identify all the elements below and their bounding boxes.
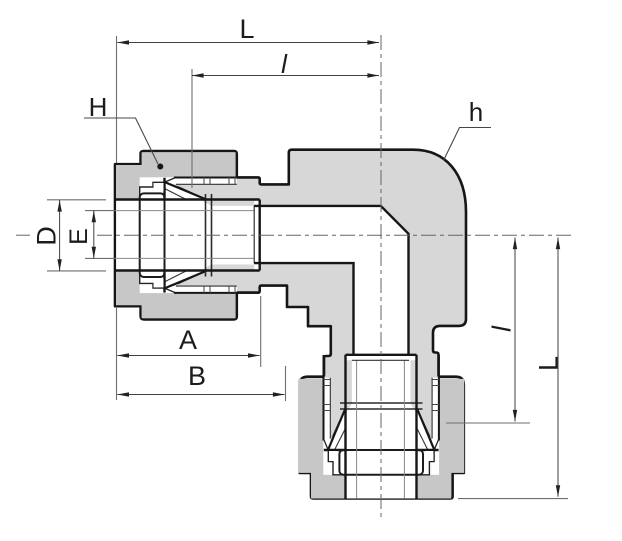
svg-text:A: A (179, 325, 197, 355)
svg-text:h: h (469, 97, 483, 127)
svg-text:B: B (188, 361, 206, 391)
svg-text:E: E (65, 228, 93, 245)
svg-text:L: L (239, 14, 254, 44)
svg-text:l: l (487, 325, 517, 332)
svg-text:D: D (31, 226, 61, 246)
svg-text:L: L (533, 356, 563, 371)
svg-text:l: l (281, 49, 288, 79)
